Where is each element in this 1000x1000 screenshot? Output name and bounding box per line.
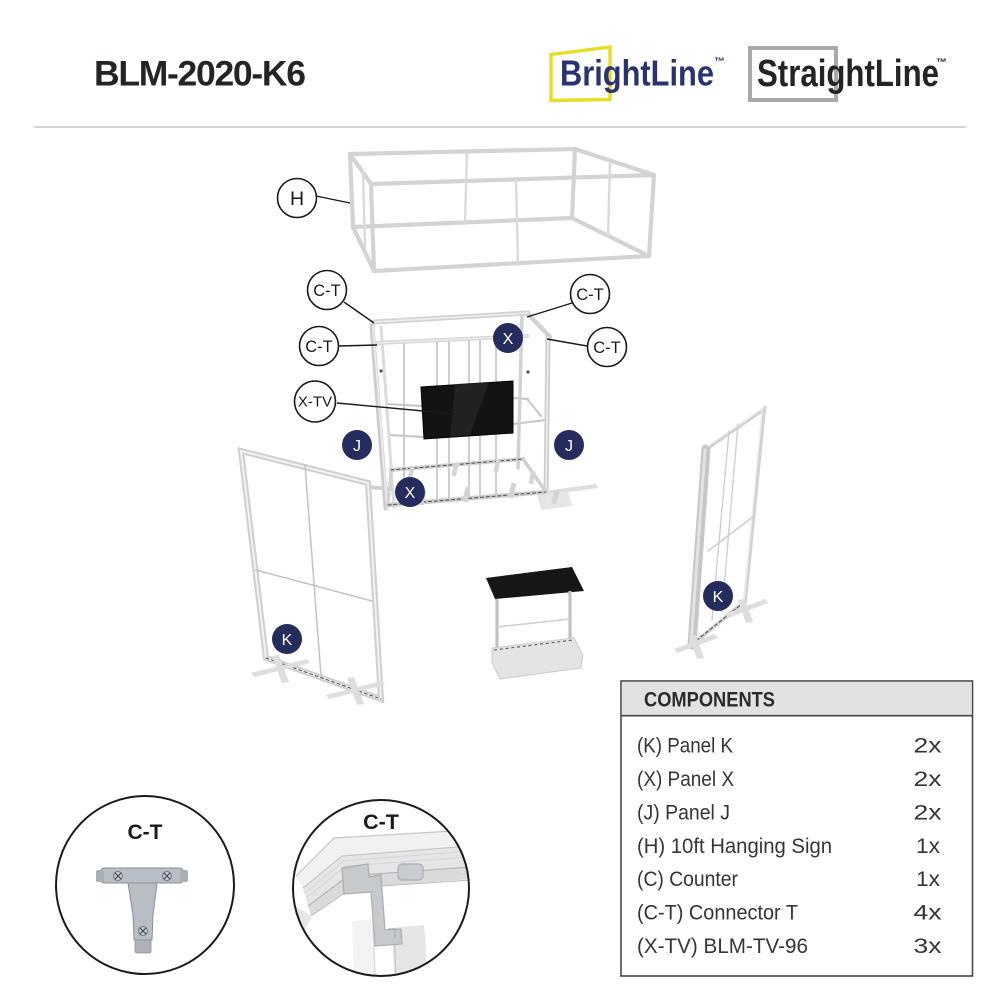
svg-text:(X-TV) BLM-TV-96: (X-TV) BLM-TV-96 xyxy=(637,934,808,958)
svg-text:™: ™ xyxy=(714,56,725,68)
svg-text:X: X xyxy=(405,485,416,502)
svg-text:C-T: C-T xyxy=(576,286,604,304)
svg-text:J: J xyxy=(565,438,573,455)
svg-text:BrightLine: BrightLine xyxy=(560,53,714,94)
svg-text:1x: 1x xyxy=(916,867,940,891)
svg-text:(K) Panel K: (K) Panel K xyxy=(637,734,734,758)
svg-text:3x: 3x xyxy=(914,934,942,958)
svg-text:4x: 4x xyxy=(914,901,942,925)
svg-text:(X) Panel X: (X) Panel X xyxy=(637,767,734,791)
svg-text:2x: 2x xyxy=(914,767,942,791)
svg-text:(C-T) Connector T: (C-T) Connector T xyxy=(637,901,798,925)
svg-text:(J) Panel J: (J) Panel J xyxy=(637,800,730,824)
svg-text:StraightLine: StraightLine xyxy=(757,53,939,95)
svg-text:C-T: C-T xyxy=(128,821,163,844)
svg-text:C-T: C-T xyxy=(363,810,399,834)
svg-text:BLM-2020-K6: BLM-2020-K6 xyxy=(94,54,306,94)
svg-text:™: ™ xyxy=(936,57,947,69)
svg-text:1x: 1x xyxy=(916,834,940,858)
svg-text:X-TV: X-TV xyxy=(298,394,332,411)
svg-text:X: X xyxy=(503,331,514,348)
svg-text:COMPONENTS: COMPONENTS xyxy=(644,688,775,712)
svg-text:C-T: C-T xyxy=(593,339,621,357)
svg-text:H: H xyxy=(290,188,304,210)
svg-text:(H) 10ft Hanging Sign: (H) 10ft Hanging Sign xyxy=(637,834,832,858)
svg-text:2x: 2x xyxy=(914,800,942,824)
svg-text:K: K xyxy=(282,632,293,649)
svg-text:C-T: C-T xyxy=(313,282,341,300)
svg-text:(C) Counter: (C) Counter xyxy=(637,867,738,891)
svg-text:K: K xyxy=(713,589,724,606)
svg-text:C-T: C-T xyxy=(305,338,333,356)
svg-text:J: J xyxy=(353,438,361,455)
svg-text:2x: 2x xyxy=(914,734,942,758)
